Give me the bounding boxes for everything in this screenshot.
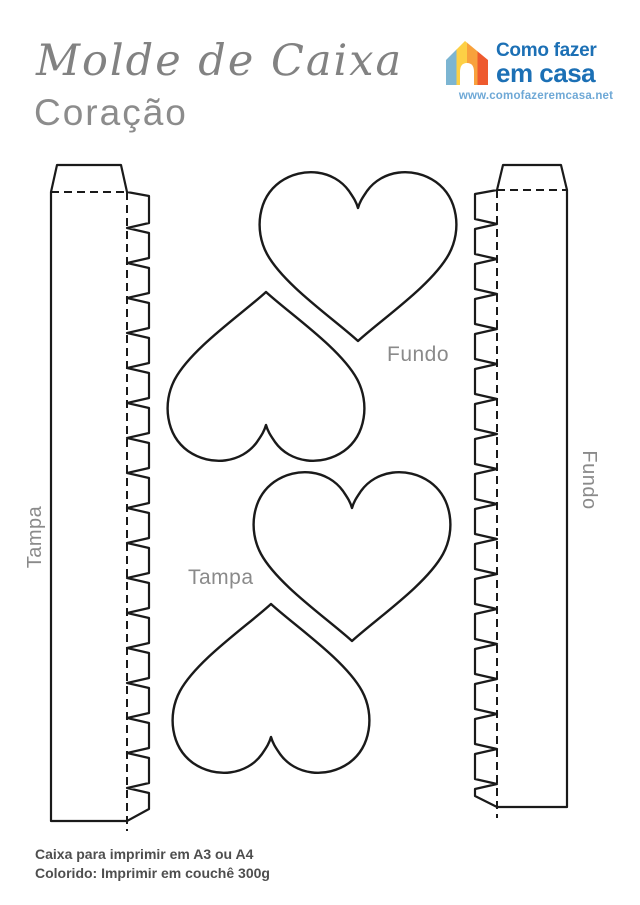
- hearts-bottom-label: Tampa: [188, 566, 254, 590]
- print-instructions-line2: Colorido: Imprimir em couchê 300g: [35, 864, 270, 883]
- strip-tampa-outline: [51, 165, 149, 821]
- print-instructions: Caixa para imprimir em A3 ou A4 Colorido…: [35, 845, 270, 883]
- strip-left-label: Tampa: [24, 488, 46, 586]
- print-instructions-line1: Caixa para imprimir em A3 ou A4: [35, 845, 270, 864]
- strip-right-label: Fundo: [578, 431, 600, 529]
- hearts-top-label: Fundo: [387, 343, 449, 367]
- template-line-art: [0, 0, 640, 905]
- printable-template-page: Molde de Caixa Coração Como fazer em cas…: [0, 0, 640, 905]
- strip-fundo-outline: [475, 165, 567, 807]
